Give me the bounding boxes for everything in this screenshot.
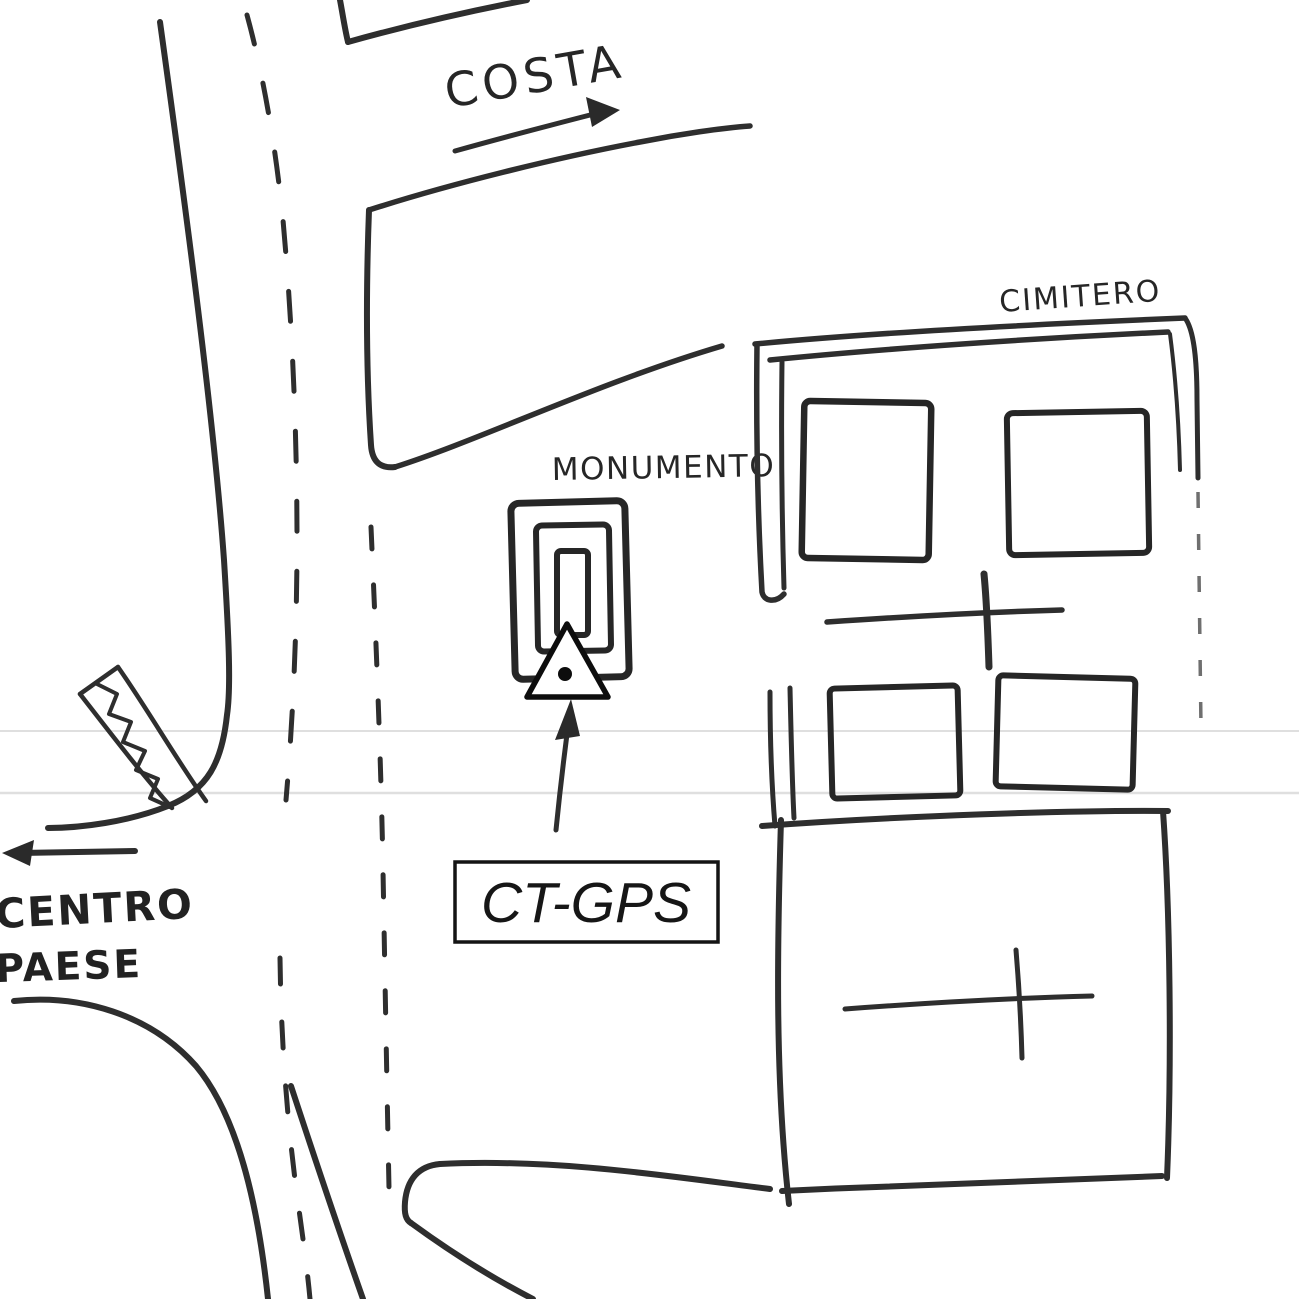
- cemetery-right-wall-inner: [1170, 334, 1180, 470]
- junction-south-edge: [14, 1000, 268, 1299]
- road-lane-dashes: [371, 527, 389, 1188]
- sketch-canvas: COSTA MONUMENTO CT-GPS CENTRO PAESE: [0, 0, 1299, 1299]
- cimitero-label: CIMITERO: [998, 274, 1162, 320]
- bottom-block-diagonal-edge: [411, 1223, 533, 1299]
- south-road-right-edge: [291, 1086, 363, 1299]
- lower-building: [762, 811, 1170, 1204]
- roads: [14, 15, 389, 1299]
- building-right-edge: [1163, 811, 1170, 1178]
- bottom-block-left-edge: [405, 1164, 440, 1223]
- cemetery-gate-post-inner: [790, 688, 794, 818]
- cemetery-tomb-3: [830, 685, 961, 798]
- costa-arrow-icon: [586, 97, 620, 127]
- cross-lower-vertical: [1016, 950, 1022, 1058]
- monument-inner-pillar: [557, 551, 588, 635]
- middle-block: [367, 126, 750, 467]
- pointer-arrow-icon: [555, 699, 580, 740]
- costa-direction: COSTA: [441, 34, 630, 151]
- upper-block-bottom-edge: [348, 0, 527, 42]
- cemetery-tomb-2: [1007, 411, 1149, 555]
- sketch-map: COSTA MONUMENTO CT-GPS CENTRO PAESE: [0, 0, 1299, 1299]
- cemetery-tomb-1: [802, 401, 932, 560]
- cemetery-cross-lower: [845, 950, 1092, 1058]
- cross-upper-horizontal: [827, 610, 1062, 622]
- cemetery-right-wall-outer: [1185, 318, 1198, 478]
- building-bottom-edge: [782, 1176, 1162, 1191]
- paese-label: PAESE: [0, 942, 143, 992]
- middle-block-left-edge: [367, 210, 395, 467]
- monumento-label: MONUMENTO: [552, 448, 776, 488]
- upper-block-corner: [340, 0, 348, 42]
- cemetery-top-wall-outer: [755, 318, 1185, 344]
- costa-arrow-line: [455, 114, 594, 151]
- survey-marker-dot: [558, 667, 572, 681]
- middle-block-bottom-edge: [395, 346, 722, 467]
- cemetery-cross-upper: [827, 574, 1062, 667]
- station-pointer: [555, 699, 580, 830]
- stairs-icon: [80, 667, 206, 808]
- cemetery-tomb-4: [996, 675, 1136, 790]
- cemetery-left-wall-inner: [782, 362, 784, 588]
- centro-label: CENTRO: [0, 880, 195, 938]
- stairs-edge-left: [80, 694, 172, 808]
- cross-upper-vertical: [984, 574, 989, 667]
- stairs-edge-right: [118, 667, 206, 801]
- cross-lower-horizontal: [845, 996, 1092, 1009]
- bottom-block-top-edge: [440, 1163, 770, 1189]
- road-center-dashes-upper: [247, 15, 297, 800]
- main-road-left-edge: [48, 22, 229, 828]
- centro-arrow-icon: [2, 840, 34, 866]
- station-label: CT-GPS: [481, 871, 691, 935]
- upper-block: [340, 0, 527, 42]
- building-top-edge: [762, 811, 1168, 826]
- middle-block-top-edge: [369, 126, 750, 210]
- building-left-edge: [778, 820, 789, 1204]
- cemetery: CIMITERO: [755, 274, 1201, 826]
- centro-arrow-line: [20, 851, 135, 853]
- bottom-block: [405, 1163, 770, 1299]
- centro-paese-direction: CENTRO PAESE: [0, 840, 195, 992]
- station-label-box: CT-GPS: [455, 862, 718, 942]
- cemetery-right-boundary-dashed: [1198, 492, 1201, 728]
- cemetery-gate-post-outer: [770, 692, 775, 826]
- stairs-chevrons: [97, 684, 170, 807]
